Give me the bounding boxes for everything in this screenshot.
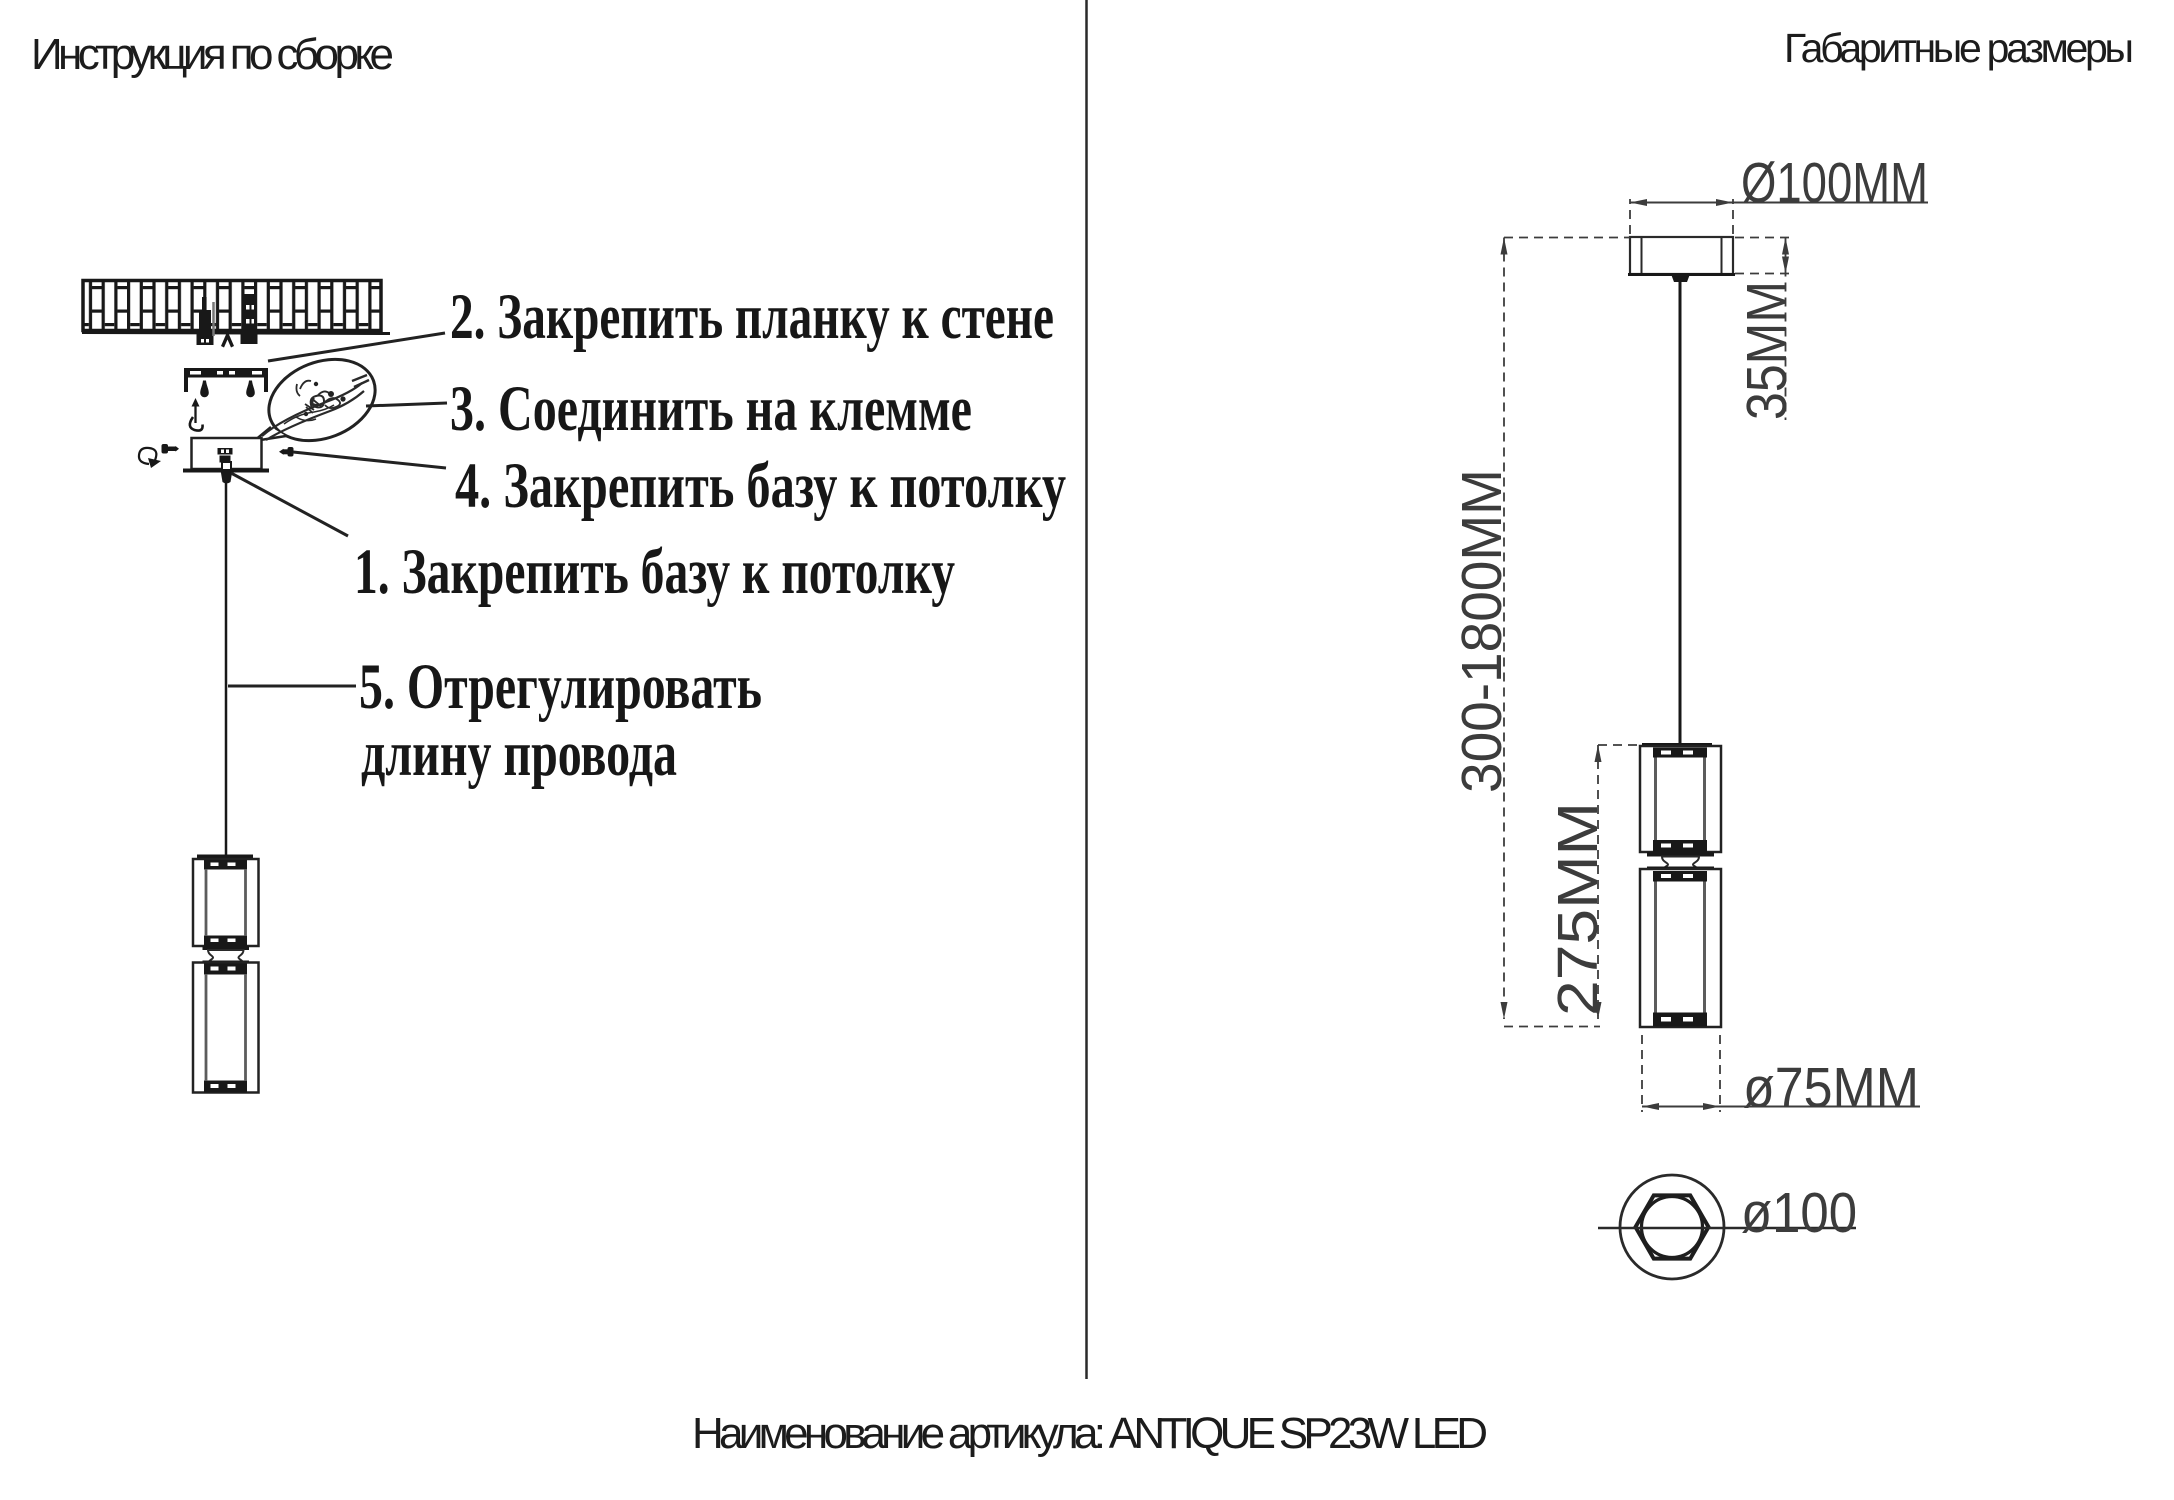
svg-text:300-1800MM: 300-1800MM [1450, 469, 1514, 793]
svg-text:Ø100MM: Ø100MM [1741, 151, 1928, 215]
svg-text:275MM: 275MM [1546, 802, 1610, 1016]
svg-text:4. Закрепить базу к потолку: 4. Закрепить базу к потолку [455, 450, 1066, 522]
svg-text:1. Закрепить базу к потолку: 1. Закрепить базу к потолку [354, 536, 955, 608]
svg-text:ø75MM: ø75MM [1743, 1056, 1919, 1120]
svg-text:Габаритные размеры: Габаритные размеры [1784, 25, 2134, 71]
svg-text:Наименование артикула: ANTIQUE: Наименование артикула: ANTIQUE SP23W LED [692, 1409, 1488, 1458]
svg-text:35MM: 35MM [1735, 281, 1799, 420]
svg-text:ø100: ø100 [1741, 1181, 1857, 1245]
svg-text:2. Закрепить планку к стене: 2. Закрепить планку к стене [450, 281, 1054, 353]
svg-text:длину провода: длину провода [361, 718, 677, 790]
svg-text:5. Отрегулировать: 5. Отрегулировать [359, 651, 762, 723]
svg-text:Инструкция по сборке: Инструкция по сборке [31, 30, 394, 79]
svg-text:3. Соединить на клемме: 3. Соединить на клемме [450, 373, 972, 445]
